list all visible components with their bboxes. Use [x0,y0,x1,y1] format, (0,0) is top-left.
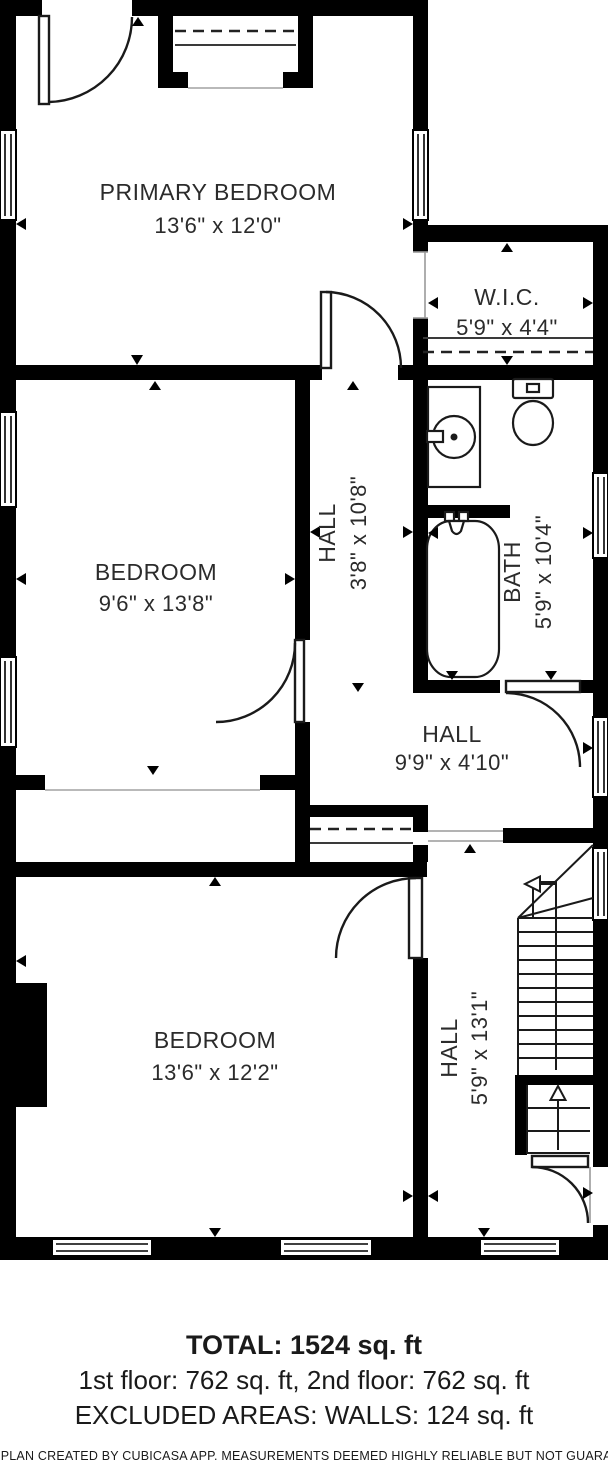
room-label-hall-upper: HALL [314,503,340,563]
wic-closet-lines [423,338,593,352]
floor-plan-page: { "plan": { "title": "2nd floor plan", "… [0,0,608,1466]
primary-bedroom-exterior-door [39,16,132,104]
room-dims-hall-middle: 9'9" x 4'10" [395,750,509,775]
room-dims-bedroom-middle: 9'6" x 13'8" [99,591,213,616]
room-dims-bath: 5'9" x 10'4" [531,515,556,629]
hall-cased-opening [428,831,503,841]
middle-bedroom-door [216,640,304,722]
window [480,1239,560,1256]
room-dims-hall-upper: 3'8" x 10'8" [346,476,371,590]
window [413,130,428,220]
area-summary: TOTAL: 1524 sq. ft 1st floor: 762 sq. ft… [0,1328,608,1433]
hall-closet [310,829,413,843]
window [280,1239,372,1256]
room-dims-primary-bedroom: 13'6" x 12'0" [154,213,281,238]
lower-bedroom-door [336,878,422,958]
window [593,717,608,797]
window [0,657,16,747]
disclaimer-footer: FLOOR PLAN CREATED BY CUBICASA APP. MEAS… [0,1449,608,1463]
stairs [518,845,593,1153]
toilet [513,379,553,445]
window [0,130,16,220]
entry-door [532,1156,590,1223]
total-area: TOTAL: 1524 sq. ft [0,1328,608,1363]
window [593,473,608,558]
room-label-bath: BATH [499,541,525,603]
room-label-bedroom-lower: BEDROOM [154,1027,276,1053]
window [593,848,608,920]
wic-opening [413,252,428,318]
room-dims-bedroom-lower: 13'6" x 12'2" [151,1060,278,1085]
floor-areas: 1st floor: 762 sq. ft, 2nd floor: 762 sq… [0,1363,608,1398]
room-dims-wic: 5'9" x 4'4" [456,315,558,340]
excluded-areas: EXCLUDED AREAS: WALLS: 124 sq. ft [0,1398,608,1433]
primary-bedroom-door [321,292,401,368]
window [0,412,16,507]
window [52,1239,152,1256]
room-label-hall-lower: HALL [436,1018,462,1078]
sink-vanity [427,387,480,487]
room-dims-hall-lower: 5'9" x 13'1" [467,991,492,1105]
room-label-hall-middle: HALL [422,721,482,747]
floor-plan-drawing: PRIMARY BEDROOM 13'6" x 12'0" W.I.C. 5'9… [0,0,608,1260]
room-label-primary-bedroom: PRIMARY BEDROOM [100,179,337,205]
room-label-bedroom-middle: BEDROOM [95,559,217,585]
room-label-wic: W.I.C. [474,284,540,310]
bath-door [506,681,580,767]
